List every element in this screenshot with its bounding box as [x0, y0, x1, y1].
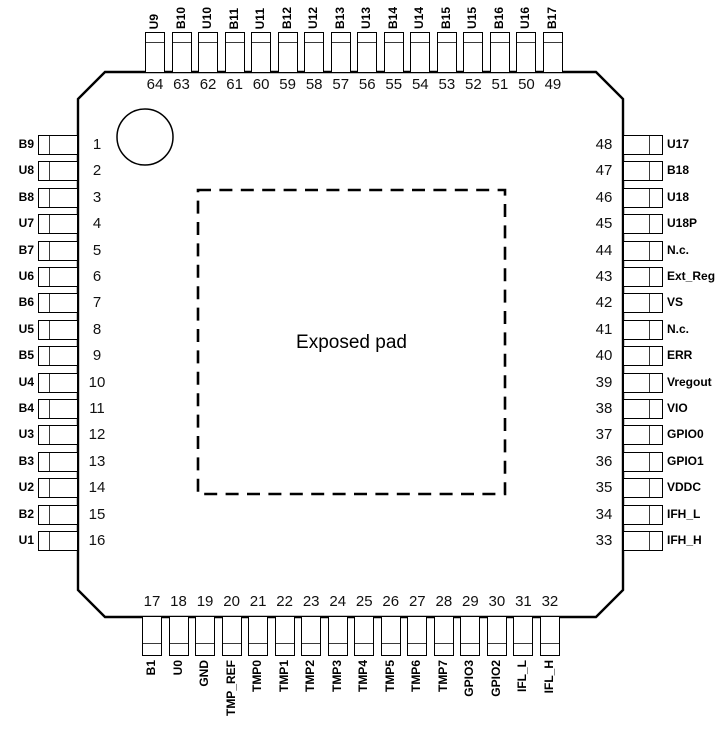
pin-46-label: U18	[667, 190, 689, 205]
pin-23-crossbar	[302, 643, 320, 644]
pin-7-shape	[38, 293, 78, 313]
pin-21-label: TMP0	[250, 660, 265, 692]
pin-20-label: TMP_REF	[224, 660, 239, 716]
pin-33-crossbar	[649, 532, 650, 550]
pin-39-label: Vregout	[667, 375, 712, 390]
pin-6-shape	[38, 267, 78, 287]
pin-9-shape	[38, 346, 78, 366]
pin-1-shape	[38, 135, 78, 155]
pin-14-number: 14	[82, 480, 112, 496]
pin-28-label: TMP7	[436, 660, 451, 692]
pin-29-crossbar	[461, 643, 479, 644]
pin-3-label: B8	[0, 190, 34, 205]
pin-1-number: 1	[82, 137, 112, 153]
pin-29-shape	[460, 616, 480, 656]
pin-20-crossbar	[223, 643, 241, 644]
pin-51-shape	[490, 32, 510, 73]
pin-61-crossbar	[226, 42, 244, 43]
pin-50-label: U16	[518, 7, 533, 29]
pin-40-shape	[623, 346, 663, 366]
pin-12-crossbar	[49, 426, 50, 444]
pin-6-label: U6	[0, 269, 34, 284]
pin-42-shape	[623, 293, 663, 313]
pin-8-number: 8	[82, 322, 112, 338]
pin-46-shape	[623, 188, 663, 208]
pin-4-label: U7	[0, 216, 34, 231]
pin-47-shape	[623, 161, 663, 181]
pin-35-crossbar	[649, 479, 650, 497]
pin-64-crossbar	[146, 42, 164, 43]
pin-24-shape	[328, 616, 348, 656]
pin-34-label: IFH_L	[667, 507, 700, 522]
pin-18-crossbar	[170, 643, 188, 644]
pin-32-label: IFL_H	[542, 660, 557, 693]
pin-63-label: B10	[174, 7, 189, 29]
pin-63-crossbar	[173, 42, 191, 43]
pin-31-label: IFL_L	[515, 660, 530, 692]
pin-26-crossbar	[382, 643, 400, 644]
pin-28-crossbar	[435, 643, 453, 644]
pin-48-crossbar	[649, 136, 650, 154]
pin-10-label: U4	[0, 375, 34, 390]
pin-3-shape	[38, 188, 78, 208]
pin-38-number: 38	[589, 401, 619, 417]
pin-14-shape	[38, 478, 78, 498]
pin-5-number: 5	[82, 243, 112, 259]
pin-36-shape	[623, 452, 663, 472]
pin-54-label: U14	[412, 7, 427, 29]
pin-8-label: U5	[0, 322, 34, 337]
pin-49-crossbar	[544, 42, 562, 43]
pin-16-label: U1	[0, 533, 34, 548]
pin-10-number: 10	[82, 375, 112, 391]
pin-53-label: B15	[439, 7, 454, 29]
exposed-pad-label: Exposed pad	[198, 332, 505, 354]
pin-41-crossbar	[649, 321, 650, 339]
pin-8-crossbar	[49, 321, 50, 339]
pin-37-number: 37	[589, 427, 619, 443]
pin-22-shape	[275, 616, 295, 656]
pin-52-label: U15	[465, 7, 480, 29]
pin-36-number: 36	[589, 454, 619, 470]
pin-16-number: 16	[82, 533, 112, 549]
pin-33-label: IFH_H	[667, 533, 702, 548]
pin-32-crossbar	[541, 643, 559, 644]
pin-37-crossbar	[649, 426, 650, 444]
pin-14-label: U2	[0, 480, 34, 495]
pin-13-shape	[38, 452, 78, 472]
pin-5-shape	[38, 241, 78, 261]
pin-12-number: 12	[82, 427, 112, 443]
pin-15-shape	[38, 505, 78, 525]
pin-6-number: 6	[82, 269, 112, 285]
pin-30-shape	[487, 616, 507, 656]
pin-27-shape	[407, 616, 427, 656]
pin-2-crossbar	[49, 162, 50, 180]
pin-35-number: 35	[589, 480, 619, 496]
pin-7-number: 7	[82, 295, 112, 311]
pin-41-shape	[623, 320, 663, 340]
pin-59-crossbar	[279, 42, 297, 43]
pin-15-label: B2	[0, 507, 34, 522]
pin-43-crossbar	[649, 268, 650, 286]
pin-12-shape	[38, 425, 78, 445]
pin-38-crossbar	[649, 400, 650, 418]
pin-16-shape	[38, 531, 78, 551]
pin-18-label: U0	[171, 660, 186, 675]
pin-23-shape	[301, 616, 321, 656]
pin-22-label: TMP1	[277, 660, 292, 692]
pin-33-shape	[623, 531, 663, 551]
pin-53-shape	[437, 32, 457, 73]
pin-3-number: 3	[82, 190, 112, 206]
pin-58-shape	[304, 32, 324, 73]
pin-47-number: 47	[589, 163, 619, 179]
pin-52-shape	[463, 32, 483, 73]
pin-7-label: B6	[0, 295, 34, 310]
pin-11-number: 11	[82, 401, 112, 417]
pin-62-crossbar	[199, 42, 217, 43]
pin-34-shape	[623, 505, 663, 525]
pin-13-crossbar	[49, 453, 50, 471]
pin-58-crossbar	[305, 42, 323, 43]
pin-40-number: 40	[589, 348, 619, 364]
pin-42-crossbar	[649, 294, 650, 312]
pin-55-label: B14	[386, 7, 401, 29]
pin-1-label: B9	[0, 137, 34, 152]
pin-13-number: 13	[82, 454, 112, 470]
pin-43-number: 43	[589, 269, 619, 285]
pin-6-crossbar	[49, 268, 50, 286]
pin-25-crossbar	[355, 643, 373, 644]
pin-41-label: N.c.	[667, 322, 689, 337]
pin-57-crossbar	[332, 42, 350, 43]
pin-62-label: U10	[200, 7, 215, 29]
pin-9-label: B5	[0, 348, 34, 363]
pin-60-shape	[251, 32, 271, 73]
pin-21-shape	[248, 616, 268, 656]
pin-29-label: GPIO3	[462, 660, 477, 697]
pin-43-label: Ext_Reg	[667, 269, 715, 284]
pin-45-number: 45	[589, 216, 619, 232]
pin-45-crossbar	[649, 215, 650, 233]
pin-63-shape	[172, 32, 192, 73]
pin-54-shape	[410, 32, 430, 73]
pin-51-label: B16	[492, 7, 507, 29]
pin-64-shape	[145, 32, 165, 73]
pin-62-shape	[198, 32, 218, 73]
pin-19-label: GND	[197, 660, 212, 687]
pin-57-shape	[331, 32, 351, 73]
pin-26-shape	[381, 616, 401, 656]
pin-25-label: TMP4	[356, 660, 371, 692]
pin-27-label: TMP6	[409, 660, 424, 692]
pin-47-crossbar	[649, 162, 650, 180]
pin-20-shape	[222, 616, 242, 656]
pin-16-crossbar	[49, 532, 50, 550]
pin-52-crossbar	[464, 42, 482, 43]
pin-45-label: U18P	[667, 216, 697, 231]
pin-33-number: 33	[589, 533, 619, 549]
pin-8-shape	[38, 320, 78, 340]
pin-41-number: 41	[589, 322, 619, 338]
chip-pinout-diagram: Exposed pad 1B92U83B84U75B76U67B68U59B51…	[0, 0, 727, 729]
pin-3-crossbar	[49, 189, 50, 207]
pin-4-crossbar	[49, 215, 50, 233]
pin-45-shape	[623, 214, 663, 234]
pin-15-crossbar	[49, 506, 50, 524]
pin-36-crossbar	[649, 453, 650, 471]
pin-5-crossbar	[49, 242, 50, 260]
pin-38-shape	[623, 399, 663, 419]
pin-35-label: VDDC	[667, 480, 701, 495]
pin-44-shape	[623, 241, 663, 261]
pin-44-crossbar	[649, 242, 650, 260]
pin-37-label: GPIO0	[667, 427, 704, 442]
pin-17-shape	[142, 616, 162, 656]
pin-28-shape	[434, 616, 454, 656]
pin-57-label: B13	[333, 7, 348, 29]
pin-34-number: 34	[589, 507, 619, 523]
pin-2-shape	[38, 161, 78, 181]
pin-44-label: N.c.	[667, 243, 689, 258]
pin-44-number: 44	[589, 243, 619, 259]
pin-49-number: 49	[537, 77, 569, 93]
pin-58-label: U12	[306, 7, 321, 29]
pin-38-label: VIO	[667, 401, 688, 416]
pin-53-crossbar	[438, 42, 456, 43]
pin-23-label: TMP2	[303, 660, 318, 692]
pin-17-label: B1	[144, 660, 159, 675]
pin-36-label: GPIO1	[667, 454, 704, 469]
pin-61-shape	[225, 32, 245, 73]
pin-10-shape	[38, 373, 78, 393]
pin-11-shape	[38, 399, 78, 419]
pin-10-crossbar	[49, 374, 50, 392]
pin-32-shape	[540, 616, 560, 656]
pin-4-shape	[38, 214, 78, 234]
pin-54-crossbar	[411, 42, 429, 43]
pin-40-crossbar	[649, 347, 650, 365]
pin-14-crossbar	[49, 479, 50, 497]
pin-40-label: ERR	[667, 348, 692, 363]
pin-46-number: 46	[589, 190, 619, 206]
pin-39-number: 39	[589, 375, 619, 391]
pin-56-shape	[357, 32, 377, 73]
pin-13-label: B3	[0, 454, 34, 469]
pin-60-label: U11	[253, 8, 268, 29]
pin-42-label: VS	[667, 295, 683, 310]
pin-39-crossbar	[649, 374, 650, 392]
pin-5-label: B7	[0, 243, 34, 258]
pin-17-crossbar	[143, 643, 161, 644]
pin-49-label: B17	[545, 7, 560, 29]
pin-1-crossbar	[49, 136, 50, 154]
pin-50-shape	[516, 32, 536, 73]
pin-12-label: U3	[0, 427, 34, 442]
pin-34-crossbar	[649, 506, 650, 524]
pin-48-label: U17	[667, 137, 689, 152]
pin-9-number: 9	[82, 348, 112, 364]
pin-32-number: 32	[534, 594, 566, 610]
pin-56-label: U13	[359, 7, 374, 29]
pin-48-shape	[623, 135, 663, 155]
pin-18-shape	[169, 616, 189, 656]
pin-25-shape	[354, 616, 374, 656]
pin-51-crossbar	[491, 42, 509, 43]
pin-24-label: TMP3	[330, 660, 345, 692]
pin-35-shape	[623, 478, 663, 498]
pin-26-label: TMP5	[383, 660, 398, 692]
pin-31-shape	[513, 616, 533, 656]
pin-19-shape	[195, 616, 215, 656]
pin-27-crossbar	[408, 643, 426, 644]
pin-31-crossbar	[514, 643, 532, 644]
pin-47-label: B18	[667, 163, 689, 178]
pin-59-label: B12	[280, 7, 295, 29]
pin-22-crossbar	[276, 643, 294, 644]
pin-11-crossbar	[49, 400, 50, 418]
pin-64-label: U9	[147, 14, 162, 29]
pin-42-number: 42	[589, 295, 619, 311]
pin-2-label: U8	[0, 163, 34, 178]
pin-55-crossbar	[385, 42, 403, 43]
pin-9-crossbar	[49, 347, 50, 365]
pin-43-shape	[623, 267, 663, 287]
pin-60-crossbar	[252, 42, 270, 43]
pin-30-crossbar	[488, 643, 506, 644]
pin-48-number: 48	[589, 137, 619, 153]
pin-2-number: 2	[82, 163, 112, 179]
pin-30-label: GPIO2	[489, 660, 504, 697]
pin-61-label: B11	[227, 8, 242, 29]
pin-21-crossbar	[249, 643, 267, 644]
pin-11-label: B4	[0, 401, 34, 416]
pin-39-shape	[623, 373, 663, 393]
pin-4-number: 4	[82, 216, 112, 232]
pin-37-shape	[623, 425, 663, 445]
pin-7-crossbar	[49, 294, 50, 312]
pin-50-crossbar	[517, 42, 535, 43]
pin-49-shape	[543, 32, 563, 73]
pin-15-number: 15	[82, 507, 112, 523]
pin-55-shape	[384, 32, 404, 73]
pin-46-crossbar	[649, 189, 650, 207]
pin-24-crossbar	[329, 643, 347, 644]
pin-19-crossbar	[196, 643, 214, 644]
pin-59-shape	[278, 32, 298, 73]
pin-56-crossbar	[358, 42, 376, 43]
